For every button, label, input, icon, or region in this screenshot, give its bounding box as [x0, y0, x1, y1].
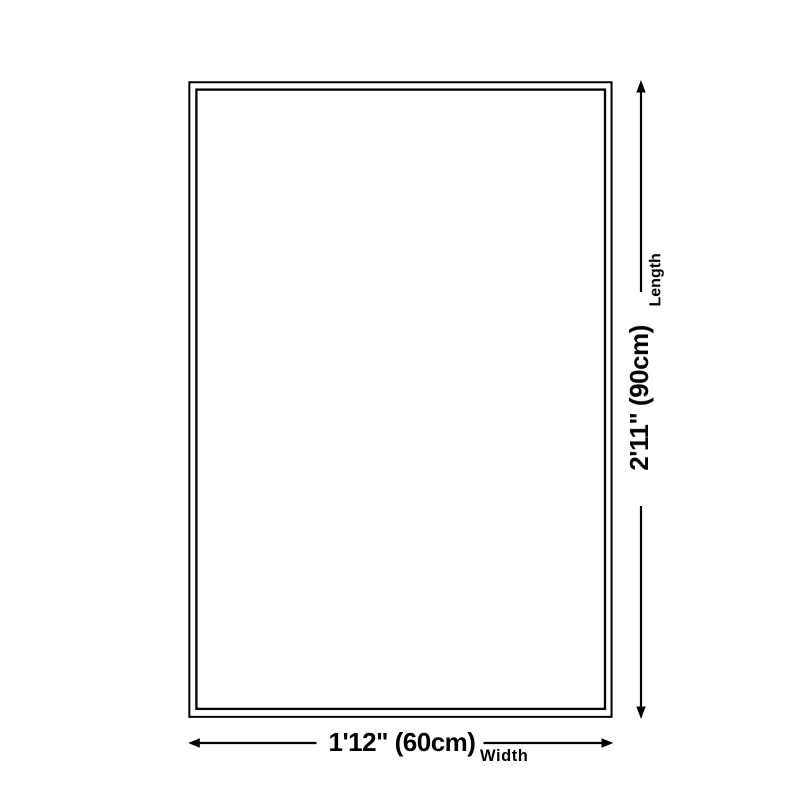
- svg-text:Width: Width: [480, 747, 528, 765]
- svg-text:Length: Length: [647, 253, 664, 306]
- svg-text:1'12" (60cm): 1'12" (60cm): [329, 727, 476, 757]
- svg-text:2'11" (90cm): 2'11" (90cm): [624, 325, 654, 471]
